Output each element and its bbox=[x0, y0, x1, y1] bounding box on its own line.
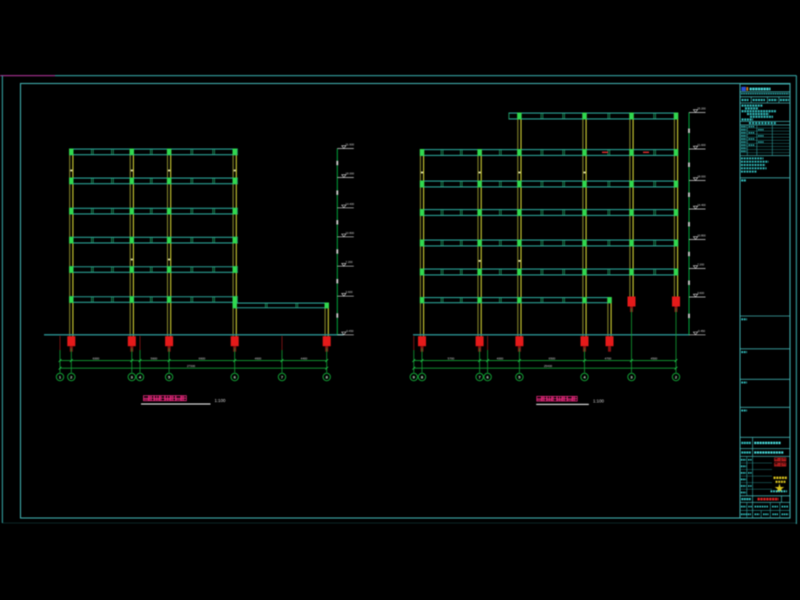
svg-text:21.600: 21.600 bbox=[697, 143, 706, 147]
svg-text:3.600: 3.600 bbox=[346, 290, 353, 294]
svg-text:1:100: 1:100 bbox=[593, 398, 605, 403]
svg-text:21.600: 21.600 bbox=[346, 143, 355, 147]
svg-text:5700: 5700 bbox=[448, 356, 455, 360]
svg-text:4600: 4600 bbox=[255, 356, 262, 360]
svg-text:14.400: 14.400 bbox=[697, 203, 706, 207]
svg-text:4700: 4700 bbox=[605, 356, 612, 360]
svg-text:1:100: 1:100 bbox=[215, 398, 227, 403]
svg-text:-0.450: -0.450 bbox=[346, 329, 354, 333]
svg-text:6600: 6600 bbox=[199, 356, 206, 360]
svg-text:27300: 27300 bbox=[187, 364, 196, 368]
svg-text:25400: 25400 bbox=[544, 364, 553, 368]
svg-text:4500: 4500 bbox=[651, 356, 658, 360]
svg-text:6000: 6000 bbox=[93, 356, 100, 360]
svg-text:6500: 6500 bbox=[549, 356, 556, 360]
svg-text:18.000: 18.000 bbox=[346, 172, 355, 176]
svg-text:7.200: 7.200 bbox=[346, 260, 353, 264]
svg-text:10.800: 10.800 bbox=[697, 234, 706, 238]
svg-text:18.000: 18.000 bbox=[697, 175, 706, 179]
svg-text:14.400: 14.400 bbox=[346, 202, 355, 206]
svg-text:10.800: 10.800 bbox=[346, 231, 355, 235]
svg-text:3.600: 3.600 bbox=[697, 291, 704, 295]
svg-text:-0.450: -0.450 bbox=[697, 329, 705, 333]
svg-text:4400: 4400 bbox=[301, 356, 308, 360]
svg-text:7.200: 7.200 bbox=[697, 263, 704, 267]
svg-text:4000: 4000 bbox=[497, 356, 504, 360]
svg-text:5600: 5600 bbox=[151, 356, 158, 360]
svg-text:25.200: 25.200 bbox=[697, 107, 706, 111]
